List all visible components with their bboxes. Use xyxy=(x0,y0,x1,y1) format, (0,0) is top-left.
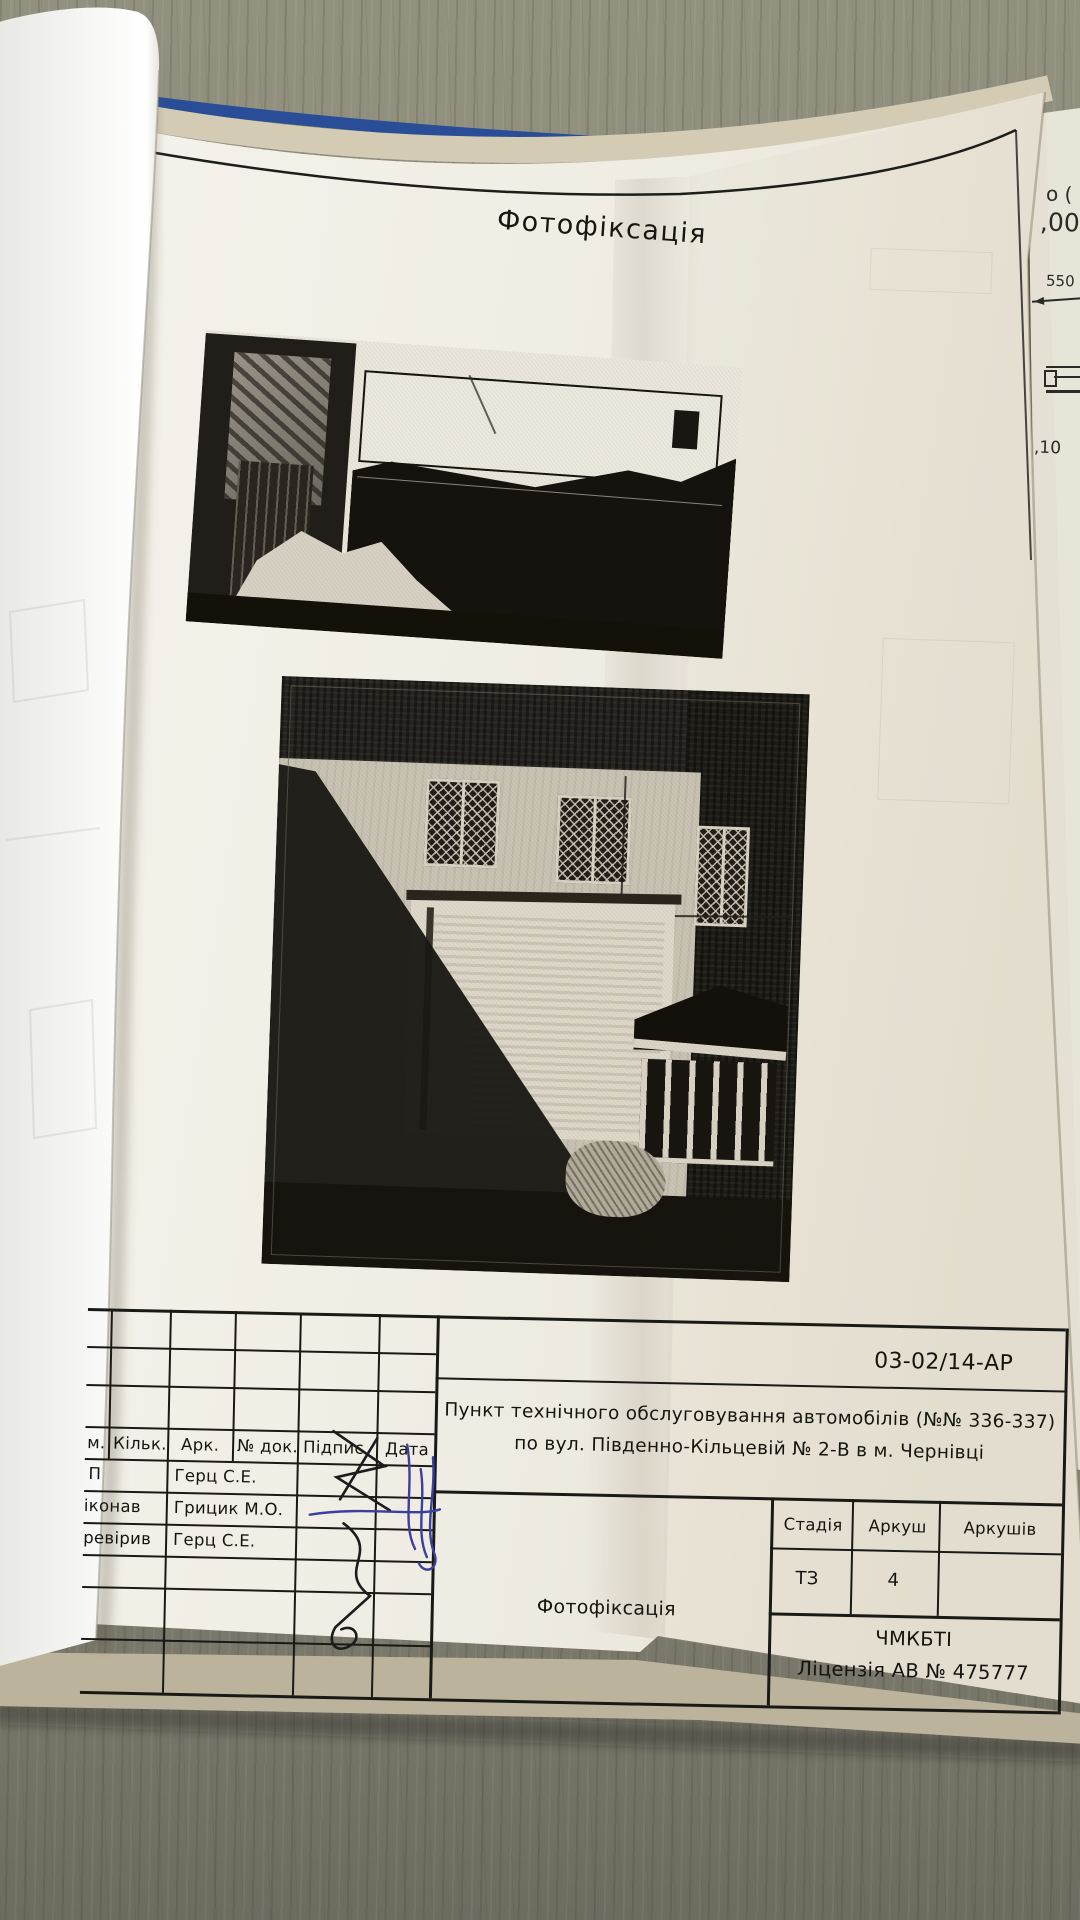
org-name: ЧМКБТІ xyxy=(768,1624,1059,1653)
tb-role: іконав xyxy=(84,1496,141,1516)
doc-code: 03-02/14-АР xyxy=(874,1348,1013,1376)
title-block: м. Кільк. Арк. № док. Підпис Дата П Герц… xyxy=(80,1308,1078,1715)
photo-top-gate xyxy=(186,330,743,659)
signature-black-ink xyxy=(329,1431,392,1649)
edge-symbol-fragment xyxy=(1046,366,1080,393)
edge-fragment-text: о ( xyxy=(1046,182,1073,207)
tb-role: ревірив xyxy=(83,1528,151,1548)
tb-role: П xyxy=(88,1464,101,1483)
sheet-label: Фотофіксація xyxy=(537,1595,676,1620)
edge-fragment-number: ,00 xyxy=(1040,207,1080,237)
signature-blue-ink xyxy=(309,1443,442,1570)
photo-top-chimney xyxy=(672,410,699,450)
edge-fragment-dimension: 550 xyxy=(1046,272,1075,291)
sheets-header: Аркушів xyxy=(963,1518,1036,1539)
edge-fragment-number2: ,10 xyxy=(1034,438,1062,459)
tb-header-zm: м. xyxy=(87,1433,106,1452)
tb-header-kilk: Кільк. xyxy=(113,1434,167,1454)
tb-header-ark: Арк. xyxy=(181,1435,220,1455)
page-ghost-mark xyxy=(869,248,992,294)
stage-value: ТЗ xyxy=(795,1568,819,1589)
signatures xyxy=(240,1401,546,1687)
stage-header: Стадія xyxy=(783,1515,842,1535)
photo-bottom-inner-border xyxy=(271,685,801,1272)
photographed-document-scene: Фотофіксація xyxy=(0,0,1080,1920)
sheet-header: Аркуш xyxy=(868,1516,926,1536)
org-license: Ліцензія АВ № 475777 xyxy=(767,1656,1058,1685)
photo-bottom-yard xyxy=(261,676,809,1282)
page-ghost-mark xyxy=(877,638,1015,805)
sheet-number: 4 xyxy=(887,1570,899,1591)
